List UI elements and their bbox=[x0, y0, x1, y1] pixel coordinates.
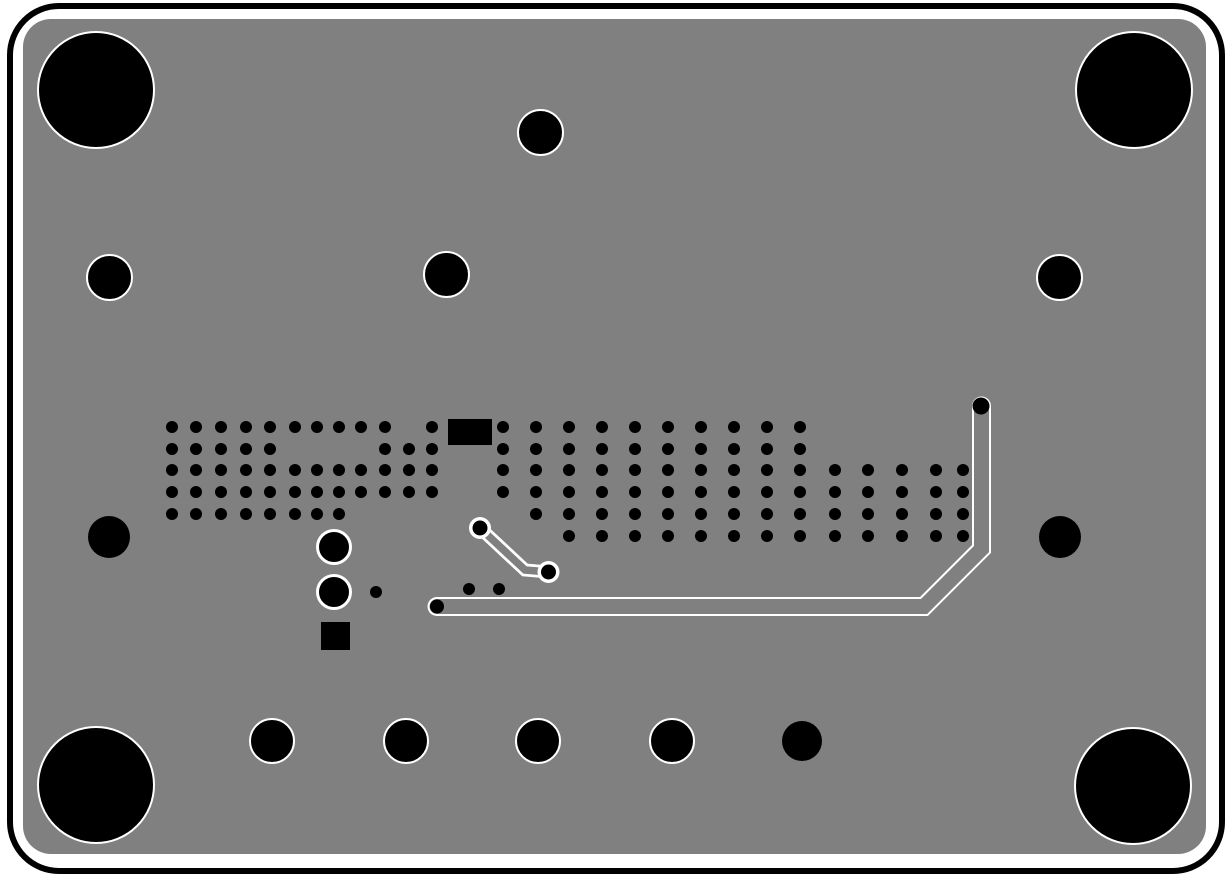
via-dot bbox=[311, 464, 323, 476]
via-dot bbox=[426, 421, 438, 433]
via-dot bbox=[190, 421, 202, 433]
via-dot bbox=[596, 530, 608, 542]
via-dot bbox=[829, 486, 841, 498]
via-dot bbox=[379, 421, 391, 433]
pcb-layer-view bbox=[0, 0, 1232, 882]
via-dot bbox=[355, 486, 367, 498]
via-dot bbox=[728, 530, 740, 542]
via-dot bbox=[333, 421, 345, 433]
via-dot bbox=[166, 421, 178, 433]
trace-end-via bbox=[541, 565, 556, 580]
trace-path bbox=[437, 406, 982, 607]
via-dot bbox=[563, 508, 575, 520]
via-dot bbox=[264, 443, 276, 455]
via-dot bbox=[264, 486, 276, 498]
via-dot bbox=[289, 421, 301, 433]
via-dot bbox=[930, 464, 942, 476]
via-dot bbox=[563, 443, 575, 455]
drill-hole-unplated bbox=[1039, 516, 1081, 558]
via-dot bbox=[215, 464, 227, 476]
via-dot bbox=[530, 464, 542, 476]
via-dot bbox=[264, 464, 276, 476]
via-dot bbox=[662, 443, 674, 455]
via-dot bbox=[957, 464, 969, 476]
via-dot bbox=[957, 486, 969, 498]
trace-end-via bbox=[973, 398, 990, 415]
via-dot bbox=[289, 508, 301, 520]
via-dot bbox=[311, 486, 323, 498]
via-dot bbox=[497, 421, 509, 433]
via-dot bbox=[190, 486, 202, 498]
via-dot bbox=[530, 421, 542, 433]
via-dot bbox=[695, 421, 707, 433]
smd-pad-square bbox=[321, 622, 350, 650]
via-dot bbox=[629, 443, 641, 455]
via-dot bbox=[240, 464, 252, 476]
via-dot bbox=[629, 530, 641, 542]
via-dot bbox=[794, 421, 806, 433]
via-dot bbox=[289, 464, 301, 476]
via-dot bbox=[862, 486, 874, 498]
via-dot bbox=[596, 464, 608, 476]
via-dot bbox=[728, 508, 740, 520]
via-dot bbox=[761, 443, 773, 455]
via-dot bbox=[563, 530, 575, 542]
via-dot bbox=[930, 530, 942, 542]
via-dot bbox=[761, 486, 773, 498]
via-dot bbox=[311, 421, 323, 433]
via-dot bbox=[190, 464, 202, 476]
via-dot bbox=[240, 421, 252, 433]
drill-hole bbox=[383, 718, 429, 764]
via-dot bbox=[497, 486, 509, 498]
smd-pad-rect bbox=[448, 419, 492, 445]
mounting-hole-bottom-right bbox=[1074, 727, 1192, 845]
via-dot bbox=[166, 443, 178, 455]
via-dot bbox=[426, 464, 438, 476]
drill-hole-unplated bbox=[782, 721, 822, 761]
via-dot bbox=[333, 508, 345, 520]
trace-end-via bbox=[430, 600, 444, 614]
via-dot bbox=[862, 530, 874, 542]
via-dot bbox=[379, 464, 391, 476]
via-dot bbox=[596, 443, 608, 455]
drill-hole bbox=[1036, 254, 1083, 301]
via-dot bbox=[957, 530, 969, 542]
mounting-hole-top-right bbox=[1075, 31, 1193, 149]
via-dot bbox=[240, 486, 252, 498]
mounting-hole-bottom-left bbox=[37, 726, 155, 844]
drill-hole bbox=[249, 718, 295, 764]
via-dot bbox=[794, 486, 806, 498]
mounting-hole-top-left bbox=[37, 31, 155, 149]
via-dot bbox=[896, 530, 908, 542]
via-dot bbox=[761, 421, 773, 433]
via-dot bbox=[896, 508, 908, 520]
via-dot bbox=[240, 508, 252, 520]
via-dot bbox=[403, 486, 415, 498]
trace-end-via bbox=[473, 521, 488, 536]
via-dot bbox=[728, 443, 740, 455]
plated-pad bbox=[316, 529, 352, 565]
via-dot bbox=[497, 464, 509, 476]
via-dot bbox=[333, 486, 345, 498]
via-dot bbox=[530, 486, 542, 498]
via-dot bbox=[289, 486, 301, 498]
via-dot bbox=[629, 421, 641, 433]
via-dot bbox=[662, 530, 674, 542]
via-dot bbox=[957, 508, 969, 520]
via-dot bbox=[896, 486, 908, 498]
via-dot bbox=[728, 486, 740, 498]
via-dot bbox=[215, 486, 227, 498]
via-dot bbox=[403, 464, 415, 476]
via-dot bbox=[930, 486, 942, 498]
via-dot bbox=[264, 421, 276, 433]
via-dot bbox=[629, 508, 641, 520]
via-dot bbox=[794, 508, 806, 520]
via-dot bbox=[493, 583, 505, 595]
via-dot bbox=[695, 530, 707, 542]
via-dot bbox=[695, 464, 707, 476]
via-dot bbox=[333, 464, 345, 476]
via-dot bbox=[190, 443, 202, 455]
via-dot bbox=[629, 486, 641, 498]
drill-hole bbox=[517, 109, 564, 156]
via-dot bbox=[662, 508, 674, 520]
via-dot bbox=[761, 530, 773, 542]
via-dot bbox=[794, 464, 806, 476]
via-dot bbox=[829, 508, 841, 520]
via-dot bbox=[629, 464, 641, 476]
via-dot bbox=[596, 508, 608, 520]
via-dot bbox=[355, 421, 367, 433]
via-dot bbox=[166, 486, 178, 498]
via-dot bbox=[662, 464, 674, 476]
via-dot bbox=[215, 508, 227, 520]
via-dot bbox=[728, 421, 740, 433]
via-dot bbox=[166, 464, 178, 476]
drill-hole bbox=[515, 718, 561, 764]
via-dot bbox=[728, 464, 740, 476]
via-dot bbox=[530, 508, 542, 520]
drill-hole-unplated bbox=[88, 516, 130, 558]
via-dot bbox=[829, 530, 841, 542]
via-dot bbox=[563, 464, 575, 476]
drill-hole bbox=[423, 251, 470, 298]
trace-path bbox=[437, 406, 982, 607]
via-dot bbox=[403, 443, 415, 455]
via-dot bbox=[530, 443, 542, 455]
via-dot bbox=[463, 583, 475, 595]
via-dot bbox=[596, 421, 608, 433]
via-dot bbox=[240, 443, 252, 455]
via-dot bbox=[355, 464, 367, 476]
via-dot bbox=[761, 508, 773, 520]
via-dot bbox=[379, 443, 391, 455]
via-dot bbox=[662, 421, 674, 433]
via-dot bbox=[563, 421, 575, 433]
via-dot bbox=[761, 464, 773, 476]
via-dot bbox=[426, 443, 438, 455]
via-dot bbox=[695, 443, 707, 455]
via-dot bbox=[379, 486, 391, 498]
via-dot bbox=[190, 508, 202, 520]
via-dot bbox=[215, 421, 227, 433]
via-dot bbox=[166, 508, 178, 520]
via-dot bbox=[930, 508, 942, 520]
via-dot bbox=[862, 508, 874, 520]
via-dot bbox=[794, 530, 806, 542]
via-dot bbox=[596, 486, 608, 498]
via-dot bbox=[695, 486, 707, 498]
via-dot bbox=[497, 443, 509, 455]
via-dot bbox=[662, 486, 674, 498]
drill-hole bbox=[86, 254, 133, 301]
via-dot bbox=[563, 486, 575, 498]
via-dot bbox=[794, 443, 806, 455]
via-dot bbox=[426, 486, 438, 498]
via-dot bbox=[215, 443, 227, 455]
via-dot bbox=[829, 464, 841, 476]
via-dot bbox=[862, 464, 874, 476]
via-dot bbox=[370, 586, 382, 598]
trace-clearance-layer bbox=[0, 0, 1232, 882]
via-dot bbox=[896, 464, 908, 476]
drill-hole bbox=[649, 718, 695, 764]
via-dot bbox=[264, 508, 276, 520]
plated-pad bbox=[316, 574, 352, 610]
via-dot bbox=[695, 508, 707, 520]
via-dot bbox=[311, 508, 323, 520]
